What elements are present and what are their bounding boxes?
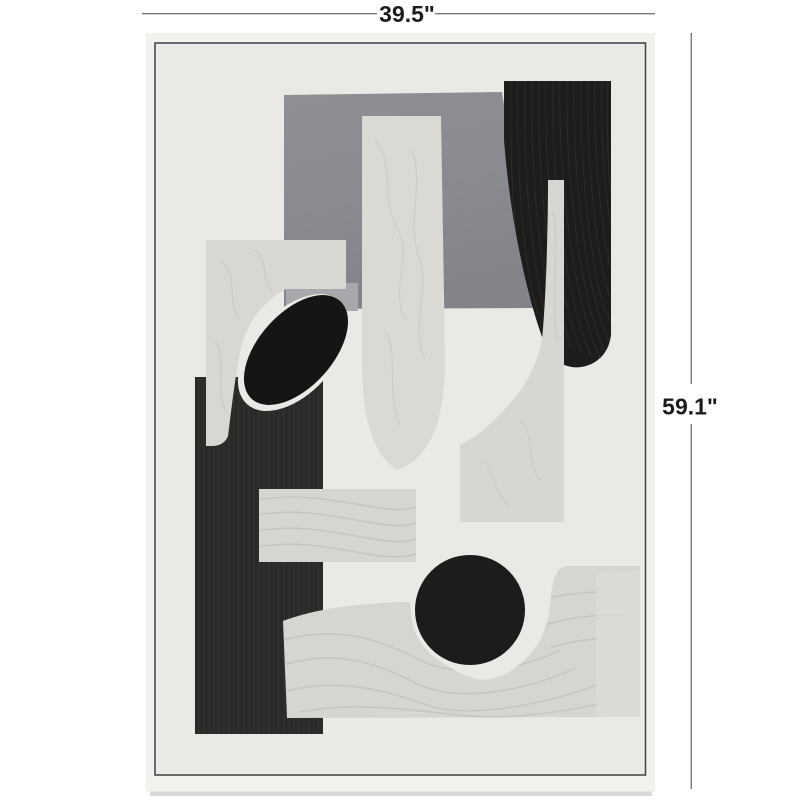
svg-text:39.5": 39.5": [379, 1, 435, 27]
svg-text:59.1": 59.1": [662, 394, 718, 420]
